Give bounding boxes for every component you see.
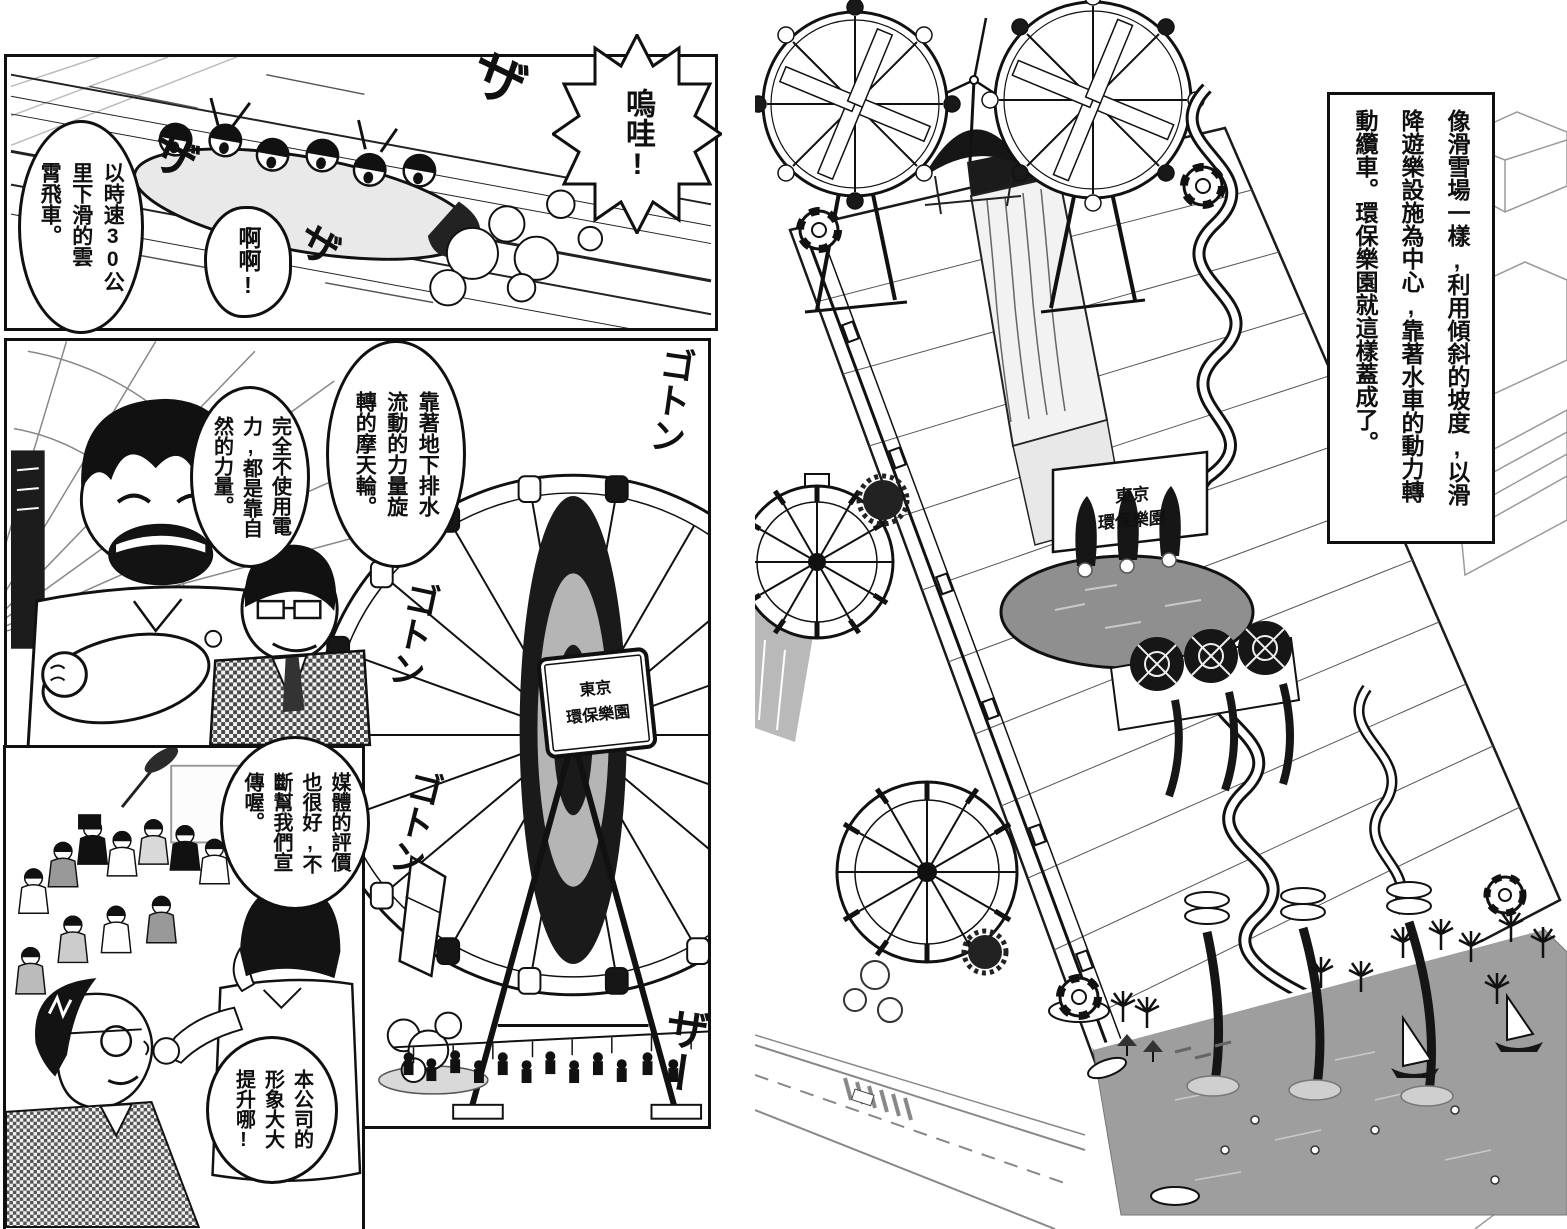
park-sign-text: 東京 環保樂園 [1070,470,1195,547]
ferris-wheel [312,475,708,1118]
caption-box: 像滑雪場一樣,利用傾斜的坡度,以滑 降遊樂設施為中心,靠著水車的動力轉 動纜車。… [1327,92,1495,544]
speech-text-media: 媒體的評價 也很好,不 斷幫我們宣 傳喔。 [237,772,353,874]
speech-text-ahh: 啊啊! [231,226,265,298]
street-bottom-left [755,1035,1085,1229]
sfx-zaa: ザー [652,1003,708,1096]
speech-text-wheel: 靠著地下排水 流動的力量旋 轉的摩天輪。 [349,391,444,517]
page-right: 像滑雪場一樣,利用傾斜的坡度,以滑 降遊樂設施為中心,靠著水車的動力轉 動纜車。… [755,0,1567,1229]
executive-profile [6,978,199,1227]
speech-bubble-wheel: 靠著地下排水 流動的力量旋 轉的摩天輪。 [326,340,466,568]
page-left: 以時速30公 里下滑的雲 霄飛車。 嗚哇! 啊啊! 靠著地下排水 流動的力量旋 … [0,0,720,1229]
speech-bubble-ahh: 啊啊! [204,206,292,318]
speech-text-power: 完全不使用電 力,都是靠自 然的力量。 [207,416,294,538]
speech-bubble-image: 本公司的 形象大大 提升哪! [206,1036,338,1184]
ferris-wheel-sign: 東京 環保樂園 [536,646,658,759]
water-wheel-lower [837,782,1017,1022]
caption-text: 像滑雪場一樣,利用傾斜的坡度,以滑 降遊樂設施為中心,靠著水車的動力轉 動纜車。… [1342,109,1480,527]
speech-bubble-power: 完全不使用電 力,都是靠自 然的力量。 [190,386,310,568]
speech-text-image: 本公司的 形象大大 提升哪! [229,1069,316,1151]
speech-bubble-speed: 以時速30公 里下滑的雲 霄飛車。 [18,120,144,334]
speech-text-wow: 嗚哇! [552,34,722,234]
water-wheel-upper [755,474,907,742]
manga-spread: 以時速30公 里下滑的雲 霄飛車。 嗚哇! 啊啊! 靠著地下排水 流動的力量旋 … [0,0,1567,1229]
speech-bubble-media: 媒體的評價 也很好,不 斷幫我們宣 傳喔。 [220,736,370,910]
rowboat-2 [1151,1187,1199,1205]
speech-bubble-wow: 嗚哇! [552,34,722,234]
speech-text-speed: 以時速30公 里下滑的雲 霄飛車。 [34,162,129,292]
